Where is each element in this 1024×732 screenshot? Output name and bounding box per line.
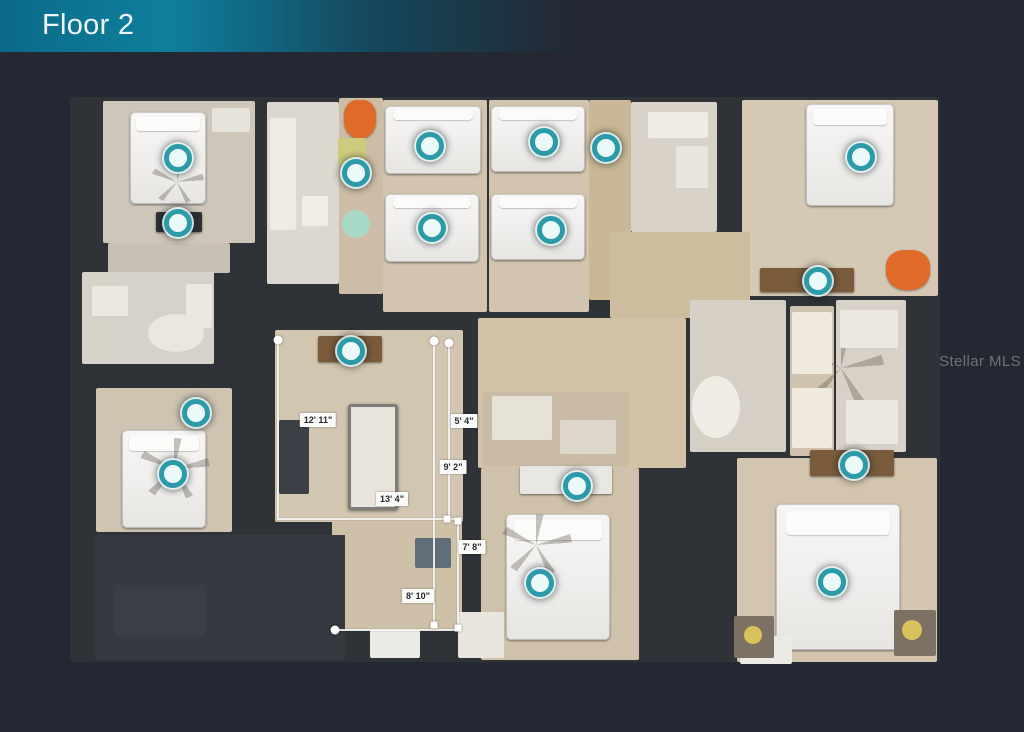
bath-fixture <box>560 420 616 454</box>
shower <box>492 396 552 440</box>
bath-fixture <box>92 286 128 316</box>
measurement-line[interactable] <box>334 629 458 631</box>
scan-position-marker[interactable] <box>818 568 846 596</box>
scan-position-marker[interactable] <box>840 451 868 479</box>
stairwell <box>115 585 205 637</box>
measurement-handle[interactable] <box>455 518 462 525</box>
scan-position-marker[interactable] <box>416 132 444 160</box>
scan-position-marker[interactable] <box>159 460 187 488</box>
scan-position-marker[interactable] <box>342 159 370 187</box>
measurement-line[interactable] <box>433 340 435 627</box>
bench <box>458 612 504 658</box>
measurement-handle[interactable] <box>445 339 454 348</box>
bath-counter <box>270 118 296 230</box>
lamp <box>902 620 922 640</box>
green-stool <box>342 210 370 238</box>
scan-position-marker[interactable] <box>337 337 365 365</box>
scan-position-marker[interactable] <box>526 569 554 597</box>
scan-position-marker[interactable] <box>182 399 210 427</box>
pillow <box>393 197 472 208</box>
measurement-line[interactable] <box>448 342 450 520</box>
bath-fixture <box>846 400 898 444</box>
scan-position-marker[interactable] <box>563 472 591 500</box>
bath-counter <box>648 112 708 138</box>
pillow <box>499 197 578 208</box>
stellar-mls-watermark: Stellar MLS <box>939 353 1021 370</box>
measurement-handle[interactable] <box>274 336 283 345</box>
scan-position-marker[interactable] <box>164 144 192 172</box>
measurement-handle[interactable] <box>455 625 462 632</box>
lamp <box>744 626 762 644</box>
scan-position-marker[interactable] <box>530 128 558 156</box>
room-hall-top-left-lower <box>108 243 230 273</box>
toilet <box>302 196 328 226</box>
measurement-line[interactable] <box>277 518 460 520</box>
orange-chair <box>886 250 930 290</box>
measurement-label[interactable]: 8' 10" <box>402 589 434 603</box>
pillow <box>786 511 890 534</box>
scan-position-marker[interactable] <box>537 216 565 244</box>
measurement-label[interactable]: 9' 2" <box>440 460 467 474</box>
red-flower-rug <box>584 184 630 234</box>
scan-position-marker[interactable] <box>847 143 875 171</box>
bench <box>370 630 420 658</box>
pillow <box>813 109 887 125</box>
orange-chair <box>344 100 376 138</box>
measurement-handle[interactable] <box>431 622 438 629</box>
scan-position-marker[interactable] <box>164 209 192 237</box>
room-loft-lower <box>332 520 462 630</box>
bathtub <box>692 376 740 438</box>
bath-fixture <box>840 310 898 348</box>
shower <box>676 146 708 188</box>
measurement-label[interactable]: 13' 4" <box>376 492 408 506</box>
bath-fixture <box>186 284 212 328</box>
floorplan-canvas[interactable]: 12' 11"5' 4"9' 2"13' 4"7' 8"8' 10" <box>0 0 1024 732</box>
measurement-handle[interactable] <box>430 337 439 346</box>
measurement-label[interactable]: 5' 4" <box>451 414 478 428</box>
floor-title: Floor 2 <box>42 0 134 50</box>
vanity <box>792 312 832 374</box>
measurement-handle[interactable] <box>444 516 451 523</box>
measurement-label[interactable]: 12' 11" <box>300 413 336 427</box>
scan-position-marker[interactable] <box>804 267 832 295</box>
measurement-line[interactable] <box>277 340 279 520</box>
pillow <box>136 117 200 132</box>
measurement-label[interactable]: 7' 8" <box>459 540 486 554</box>
floor-banner: Floor 2 <box>0 0 600 52</box>
ceiling-fan-shadow <box>500 514 572 576</box>
scan-position-marker[interactable] <box>418 214 446 242</box>
closet-shelf <box>212 108 250 132</box>
vanity <box>792 388 832 448</box>
pillow <box>393 109 474 120</box>
measurement-handle[interactable] <box>331 626 340 635</box>
measurement-line[interactable] <box>457 520 459 629</box>
pillow <box>499 109 578 120</box>
scan-position-marker[interactable] <box>592 134 620 162</box>
shelf <box>279 420 309 494</box>
